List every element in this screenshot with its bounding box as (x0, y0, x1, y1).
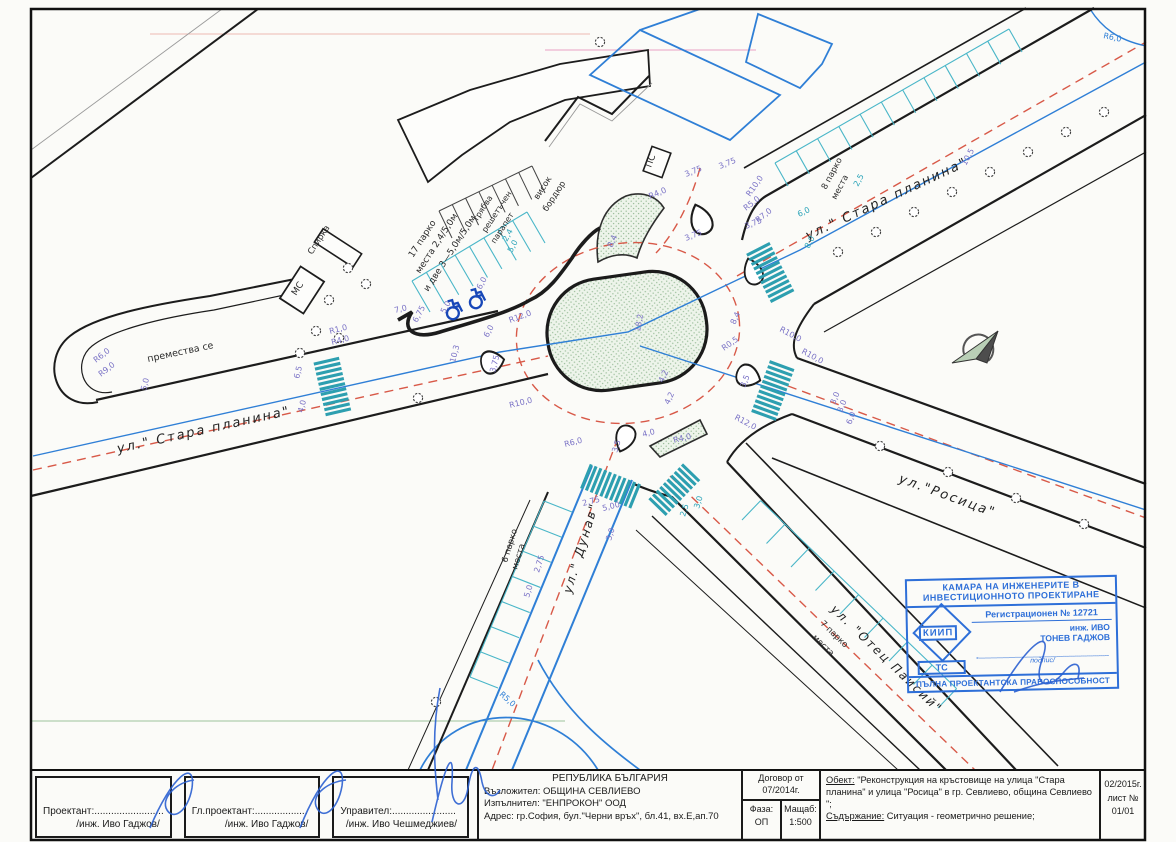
content-line: Съдържание: Ситуация - геометрично решен… (826, 810, 1094, 822)
dimension-label: R6,0 (1103, 31, 1123, 44)
manager-name: /инж. Иво Чешмеджиев/ (340, 818, 461, 831)
dimension-label: R0,5 (720, 335, 740, 353)
dimension-label: 4,0 (296, 399, 308, 414)
tree-icon (1011, 493, 1020, 502)
dimension-label: R10,0 (508, 396, 533, 410)
dimension-label: R6,0 (563, 436, 583, 449)
tree-icon (1061, 127, 1070, 136)
dimension-label: R5,0 (498, 690, 518, 709)
dimension-label: 5,0 (439, 299, 453, 314)
phase-cell: Фаза: ОП (743, 801, 782, 840)
kiip-logo-text: КИИП (919, 625, 958, 641)
dimension-label: 2,5 (852, 172, 866, 187)
drawing-sheet: ул." Стара планина"ул." Стара планина"ул… (0, 0, 1176, 842)
contractor-line: Изпълнител: "ЕНПРОКОН" ООД (484, 798, 736, 811)
dimension-label: 6,5 (292, 365, 304, 380)
tree-icon (833, 247, 842, 256)
dimension-label: 6,0 (475, 275, 489, 290)
dimension-label: 3,0 (604, 527, 616, 542)
tree-icon (1079, 519, 1088, 528)
address-line: Адрес: гр.София, бул."Черни връх", бл.41… (484, 811, 736, 824)
crosswalk (648, 463, 700, 516)
tree-icon (343, 263, 352, 272)
dimension-label: 3,75 (717, 156, 737, 171)
contract-date: Договор от 07/2014г. (743, 770, 819, 801)
client-line: Възложител: ОБЩИНА СЕВЛИЕВО (484, 786, 736, 799)
dimension-label: 3,75 (683, 228, 703, 243)
note-relocate: премества се (146, 340, 214, 365)
dimension-label: R5,0 (742, 194, 762, 212)
buildings-black (280, 50, 671, 314)
street-label-stara-planina-ne: ул." Стара планина" (802, 155, 970, 244)
tree-icon (324, 295, 333, 304)
roundabout-central-island (540, 264, 714, 397)
manager-label: Управител:....................... (340, 805, 461, 818)
tree-icon (431, 697, 440, 706)
street-label-dunav: ул." Дунав" (560, 501, 601, 596)
project-parties-cell: РЕПУБЛИКА БЪЛГАРИЯ Възложител: ОБЩИНА СЕ… (479, 770, 743, 840)
engineer-stamp: КАМАРА НА ИНЖЕНЕРИТЕ В ИНВЕСТИЦИОННОТО П… (905, 575, 1119, 693)
tree-icon (1023, 147, 1032, 156)
tree-icon (1099, 107, 1108, 116)
dimension-label: 10,5 (960, 147, 976, 167)
dimension-label: 6,0 (796, 205, 811, 219)
parking-bay-row (775, 29, 1022, 186)
chief-designer-name: /инж. Иво Гаджов/ (192, 818, 313, 831)
dimension-label: 6,75 (411, 304, 427, 324)
dimension-label: 5,00 (601, 500, 620, 513)
tree-icon (947, 187, 956, 196)
designer-name: /инж. Иво Гаджов/ (43, 818, 164, 831)
sheet-number-cell: 02/2015г. лист № 01/01 (1101, 770, 1145, 840)
title-block: Проектант:......................... /инж… (31, 770, 1145, 840)
tree-icon (311, 326, 320, 335)
tree-icon (871, 227, 880, 236)
country-title: РЕПУБЛИКА БЪЛГАРИЯ (484, 772, 736, 786)
dimension-label: 5,0 (522, 584, 534, 599)
dimension-label: 6,0 (482, 323, 496, 338)
chief-designer-box: Гл.проектант:................... /инж. И… (184, 776, 321, 838)
dimension-label: R12,0 (733, 413, 758, 432)
dimension-label: 7,0 (393, 303, 407, 315)
title-block-table: РЕПУБЛИКА БЪЛГАРИЯ Възложител: ОБЩИНА СЕ… (477, 770, 1145, 840)
object-content-cell: Обект: "Реконструкция на кръстовище на у… (821, 770, 1101, 840)
stamp-section: ТС (918, 660, 966, 675)
dimension-label: 4,0 (641, 427, 656, 439)
crosswalk (751, 360, 794, 421)
tree-icon (361, 279, 370, 288)
tree-icon (413, 393, 422, 402)
north-arrow-icon (952, 331, 998, 363)
contract-phase-scale-cell: Договор от 07/2014г. Фаза: ОП Мащаб: 1:5… (743, 770, 821, 840)
dimension-label: 2,75 (532, 554, 546, 574)
tree-icon (595, 37, 604, 46)
tree-icon (295, 348, 304, 357)
dimension-label: R4,0 (647, 186, 667, 201)
tree-icon (943, 467, 952, 476)
sheet-label: лист № (1101, 792, 1145, 806)
stamp-signature-label: подпис/ (976, 655, 1108, 666)
sheet-no: 01/01 (1101, 805, 1145, 819)
stamp-logo: КИИП ТС (911, 610, 972, 675)
designer-box: Проектант:......................... /инж… (35, 776, 172, 838)
designer-label: Проектант:......................... (43, 805, 164, 818)
tree-icon (909, 207, 918, 216)
street-label-stara-planina-west: ул." Стара планина" (115, 404, 292, 457)
stamp-footer: ПЪЛНА ПРОЕКТАНТСКА ПРАВОСПОСОБНОСТ (909, 672, 1117, 691)
site-plan: ул." Стара планина"ул." Стара планина"ул… (0, 0, 1176, 842)
manager-box: Управител:....................... /инж. … (332, 776, 469, 838)
dimension-label: R9,0 (97, 360, 117, 378)
object-line: Обект: "Реконструкция на кръстовище на у… (826, 774, 1094, 810)
scale-cell: Мащаб: 1:500 (782, 801, 819, 840)
dimension-label: 4,2 (663, 391, 677, 406)
dimension-label: 3,75 (683, 164, 703, 179)
tree-icon (875, 441, 884, 450)
tree-icon (985, 167, 994, 176)
stamp-engineer-name: инж. ИВО ТОНЕВ ГАДЖОВ (972, 620, 1112, 646)
chief-designer-label: Гл.проектант:................... (192, 805, 313, 818)
dimension-label: R7,0 (754, 206, 774, 224)
sheet-date: 02/2015г. (1101, 778, 1145, 792)
